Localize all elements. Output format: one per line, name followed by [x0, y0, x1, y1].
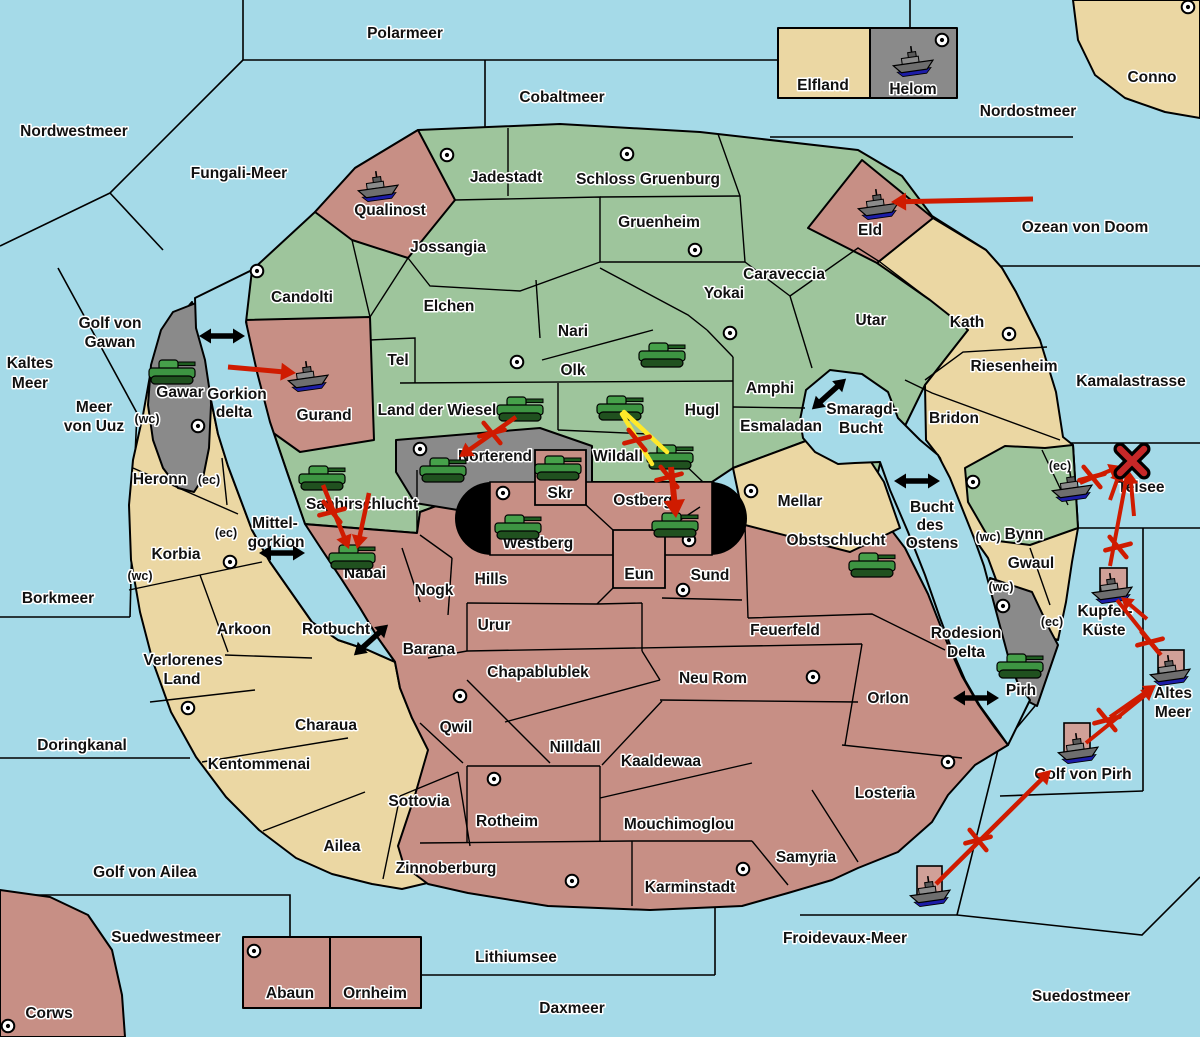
region-label: Ostberg: [613, 492, 672, 509]
region-label: Nogk: [415, 582, 454, 599]
region-label: Elfland: [797, 77, 849, 94]
supply-center-icon: [737, 863, 750, 876]
region-label: Gruenheim: [618, 214, 700, 231]
sea-label: delta: [216, 404, 253, 421]
sea-label: Bucht: [910, 499, 954, 516]
region-label: Sund: [691, 567, 730, 584]
region-label: Nilldall: [550, 739, 601, 756]
region-border: [733, 407, 805, 408]
sea-label: Doringkanal: [37, 737, 127, 754]
region-label: Jadestadt: [470, 169, 542, 186]
region-label: Bridon: [929, 410, 979, 427]
region-border: [597, 603, 642, 604]
supply-center-icon: [621, 148, 634, 161]
sea-label: Ostens: [906, 535, 959, 552]
sea-label: Nordwestmeer: [20, 123, 128, 140]
region-label: Kaaldewaa: [621, 753, 702, 770]
region-label: Hugl: [685, 402, 719, 419]
region-label: Kath: [950, 314, 984, 331]
region-label: Eld: [858, 222, 882, 239]
sea-label: von Uuz: [64, 418, 125, 435]
supply-center-icon: [936, 34, 949, 47]
sea-label: Meer: [12, 375, 48, 392]
region-label: Yokai: [704, 285, 744, 302]
region-label: Caraveccia: [743, 266, 825, 283]
supply-center-icon: [488, 773, 501, 786]
region-label: Esmaladan: [740, 418, 822, 435]
region-label: Obstschlucht: [786, 532, 885, 549]
region-label: Heronn: [133, 471, 187, 488]
coast-marker: (wc): [135, 412, 160, 426]
region-label: Ornheim: [343, 985, 407, 1002]
sea-label: Rotbucht: [302, 621, 370, 638]
region-label: Saphirschlucht: [306, 496, 418, 513]
sea-label: Bucht: [839, 420, 883, 437]
sea-label: Mittel-: [252, 515, 298, 532]
supply-center-icon: [967, 476, 980, 489]
region-label: Land der Wiesel: [378, 402, 497, 419]
region-label: Jossangia: [410, 239, 486, 256]
supply-center-icon: [942, 756, 955, 769]
sea-label: Delta: [947, 644, 985, 661]
sea-label: Golf von: [79, 315, 142, 332]
region-label: Urur: [478, 617, 511, 634]
supply-center-icon: [414, 443, 427, 456]
region-label: Mellar: [778, 493, 823, 510]
region-label: Candolti: [271, 289, 333, 306]
region-label: Gawar: [156, 384, 203, 401]
region-label: Skr: [548, 485, 573, 502]
region-label: Charaua: [295, 717, 357, 734]
region-label: Olk: [561, 362, 586, 379]
region-label: Eun: [624, 566, 653, 583]
sea-label: Meer: [1155, 704, 1191, 721]
sea-label: Fungali-Meer: [191, 165, 287, 182]
sea-label: Borkmeer: [22, 590, 94, 607]
coast-marker: (ec): [1041, 615, 1063, 629]
region-label: Utar: [855, 312, 886, 329]
sea-label: Lithiumsee: [475, 949, 557, 966]
sea-label: Polarmeer: [367, 25, 443, 42]
supply-center-icon: [251, 265, 264, 278]
supply-center-icon: [566, 875, 579, 888]
supply-center-icon: [441, 149, 454, 162]
region-label: Zinnoberburg: [396, 860, 497, 877]
sea-label: Meer: [76, 399, 112, 416]
sea-label: Gorkion: [207, 386, 266, 403]
map-canvas[interactable]: PolarmeerCobaltmeerNordostmeerOzean von …: [0, 0, 1200, 1037]
region-label: Pirh: [1006, 682, 1036, 699]
region-border: [467, 603, 597, 604]
supply-center-icon: [192, 420, 205, 433]
region-label: Wildall: [593, 448, 643, 465]
coast-marker: (wc): [128, 569, 153, 583]
region-label: Helom: [889, 81, 936, 98]
coast-marker: (wc): [989, 580, 1014, 594]
sea-label: Nordostmeer: [980, 103, 1076, 120]
sea-label: Conno: [1127, 69, 1176, 86]
region-label: Riesenheim: [970, 358, 1057, 375]
sea-label: Corws: [25, 1005, 72, 1022]
region-label: Feuerfeld: [750, 622, 820, 639]
sea-label: Froidevaux-Meer: [783, 930, 907, 947]
battle-x-icon: [1120, 449, 1144, 473]
region-label: Barana: [403, 641, 456, 658]
supply-center-icon: [807, 671, 820, 684]
sea-label: Kaltes: [7, 355, 54, 372]
sea-label: Ozean von Doom: [1022, 219, 1149, 236]
region-label: Rotheim: [476, 813, 538, 830]
region-label: Land: [163, 671, 200, 688]
supply-center-icon: [677, 584, 690, 597]
region-label: Sottovia: [388, 793, 450, 810]
supply-center-icon: [511, 356, 524, 369]
supply-center-icon: [497, 487, 510, 500]
region-label: Losteria: [855, 785, 916, 802]
region-border: [600, 196, 740, 197]
sea-label: Cobaltmeer: [519, 89, 604, 106]
sea-label: Küste: [1082, 622, 1125, 639]
sea-label: Suedwestmeer: [111, 929, 220, 946]
supply-center-icon: [1003, 328, 1016, 341]
supply-center-icon: [248, 945, 261, 958]
supply-center-icon: [2, 1020, 15, 1033]
region-label: Abaun: [266, 985, 314, 1002]
region-label: Karminstadt: [645, 879, 735, 896]
region-label: Gurand: [296, 407, 351, 424]
region-label: Kentommenai: [208, 756, 311, 773]
region-label: Chapablublek: [487, 664, 589, 681]
region-label: Amphi: [746, 380, 794, 397]
region-label: Hills: [475, 571, 508, 588]
region-label: Gwaul: [1008, 555, 1055, 572]
supply-center-icon: [182, 702, 195, 715]
game-map: PolarmeerCobaltmeerNordostmeerOzean von …: [0, 0, 1200, 1037]
supply-center-icon: [1182, 1, 1195, 14]
region-label: Qualinost: [354, 202, 425, 219]
region-label: Tel: [387, 352, 408, 369]
sea-label: Kamalastrasse: [1076, 373, 1186, 390]
supply-center-icon: [224, 556, 237, 569]
sea-label: Suedostmeer: [1032, 988, 1130, 1005]
sea-label: Smaragd-: [826, 401, 898, 418]
region-label: Verlorenes: [143, 652, 222, 669]
region-label: Elchen: [424, 298, 475, 315]
sea-label: Golf von Ailea: [93, 864, 197, 881]
region-label: Nari: [558, 323, 588, 340]
region-label: Bynn: [1005, 526, 1044, 543]
region-label: Orlon: [867, 690, 908, 707]
sea-label: Gawan: [85, 334, 136, 351]
region-label: Mouchimoglou: [624, 816, 734, 833]
region-label: Qwil: [440, 719, 473, 736]
coast-marker: (wc): [976, 530, 1001, 544]
supply-center-icon: [745, 485, 758, 498]
supply-center-icon: [689, 244, 702, 257]
region-label: Arkoon: [217, 621, 271, 638]
region-label: Ailea: [323, 838, 360, 855]
region-label: Neu Rom: [679, 670, 747, 687]
sea-label: Altes: [1154, 685, 1192, 702]
sea-label: Rodesion: [931, 625, 1002, 642]
supply-center-icon: [454, 690, 467, 703]
region-label: Korbia: [151, 546, 200, 563]
sea-label: Daxmeer: [539, 1000, 605, 1017]
supply-center-icon: [997, 600, 1010, 613]
coast-marker: (ec): [215, 526, 237, 540]
coast-marker: (ec): [198, 473, 220, 487]
region-label: Schloss Gruenburg: [576, 171, 720, 188]
sea-label: des: [917, 517, 944, 534]
coast-marker: (ec): [1049, 459, 1071, 473]
supply-center-icon: [724, 327, 737, 340]
region-label: Samyria: [776, 849, 837, 866]
